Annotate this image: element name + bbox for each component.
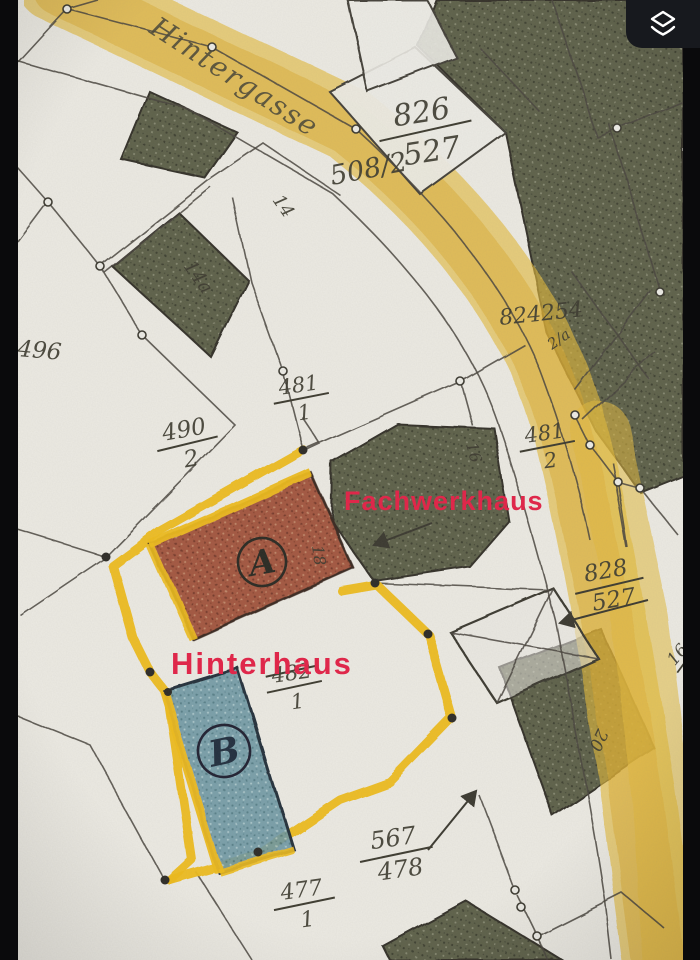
letterbox-right	[683, 0, 700, 960]
photo-vignette	[0, 0, 700, 960]
cadastral-map-photo: A B Hintergasse 826 527 5	[0, 0, 700, 960]
layers-icon	[646, 8, 680, 40]
layers-button[interactable]	[626, 0, 700, 48]
letterbox-left	[0, 0, 18, 960]
photo-viewer[interactable]: A B Hintergasse 826 527 5	[0, 0, 700, 960]
